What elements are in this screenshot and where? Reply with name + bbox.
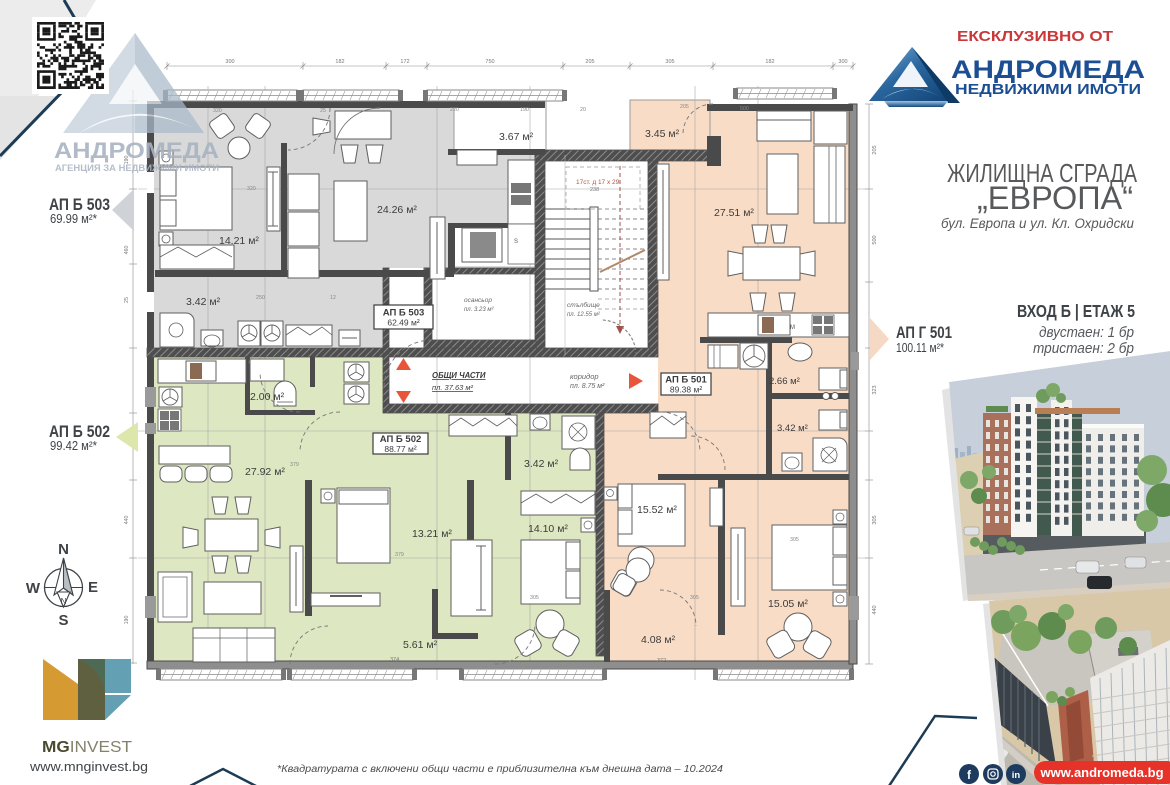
svg-text:N: N: [61, 597, 67, 606]
svg-text:379: 379: [290, 462, 299, 468]
svg-text:238: 238: [590, 187, 599, 193]
svg-text:305: 305: [790, 537, 799, 543]
svg-text:17ст. д 17 х 29: 17ст. д 17 х 29: [576, 179, 620, 186]
svg-text:190: 190: [124, 616, 130, 625]
svg-text:500: 500: [740, 106, 749, 112]
svg-text:14.10 м²: 14.10 м²: [528, 523, 568, 535]
svg-text:АГЕНЦИЯ ЗА НЕДВИЖИМИ ИМОТИ: АГЕНЦИЯ ЗА НЕДВИЖИМИ ИМОТИ: [55, 163, 219, 173]
svg-text:2.00 м²: 2.00 м²: [250, 391, 285, 403]
svg-text:300: 300: [225, 59, 234, 65]
svg-text:182: 182: [765, 59, 774, 65]
svg-text:62.49 м²: 62.49 м²: [387, 318, 419, 328]
svg-text:АНДРОМЕДА: АНДРОМЕДА: [54, 138, 219, 163]
svg-text:5.61 м²: 5.61 м²: [403, 639, 438, 651]
svg-text:www.mnginvest.bg: www.mnginvest.bg: [29, 759, 148, 774]
svg-text:220: 220: [450, 107, 459, 113]
svg-text:W: W: [26, 580, 41, 597]
svg-text:3.42 м²: 3.42 м²: [524, 458, 559, 470]
svg-text:НЕДВИЖИМИ ИМОТИ: НЕДВИЖИМИ ИМОТИ: [955, 81, 1141, 98]
svg-text:305: 305: [872, 515, 878, 524]
svg-text:15.52 м²: 15.52 м²: [637, 504, 677, 516]
svg-text:300: 300: [838, 59, 847, 65]
svg-text:25: 25: [320, 108, 326, 114]
svg-text:3.45 м²: 3.45 м²: [645, 128, 680, 140]
svg-text:13.21 м²: 13.21 м²: [412, 528, 452, 540]
svg-text:АП Г 501: АП Г 501: [896, 324, 952, 342]
svg-text:205: 205: [872, 145, 878, 154]
svg-text:27.51 м²: 27.51 м²: [714, 207, 754, 219]
svg-text:3.42 м²: 3.42 м²: [777, 423, 808, 434]
svg-text:www.andromeda.bg: www.andromeda.bg: [1039, 765, 1163, 780]
svg-text:in: in: [1012, 770, 1021, 781]
svg-text:MGINVEST: MGINVEST: [42, 739, 132, 756]
svg-text:14.21 м²: 14.21 м²: [219, 235, 259, 247]
svg-text:88.77 м²: 88.77 м²: [384, 444, 416, 454]
svg-text:27.92 м²: 27.92 м²: [245, 466, 285, 478]
svg-text:440: 440: [124, 516, 130, 525]
svg-text:250: 250: [256, 295, 265, 301]
svg-text:S: S: [514, 239, 518, 245]
svg-text:99.42 м²*: 99.42 м²*: [50, 439, 97, 453]
svg-text:320: 320: [247, 186, 256, 192]
svg-text:12: 12: [330, 295, 336, 301]
svg-text:460: 460: [124, 246, 130, 255]
svg-text:20: 20: [580, 107, 586, 113]
svg-text:стълбище: стълбище: [567, 301, 600, 309]
svg-text:172: 172: [400, 59, 409, 65]
svg-text:пл. 12.55 м²: пл. 12.55 м²: [567, 312, 601, 318]
svg-text:100.11 м²*: 100.11 м²*: [896, 341, 944, 355]
svg-text:372: 372: [657, 658, 666, 664]
svg-text:379: 379: [395, 552, 404, 558]
svg-text:ВХОД Б | ЕТАЖ 5: ВХОД Б | ЕТАЖ 5: [1017, 301, 1135, 321]
svg-text:750: 750: [485, 59, 494, 65]
svg-text:320: 320: [213, 108, 222, 114]
svg-text:пл. 8.75 м²: пл. 8.75 м²: [570, 383, 605, 390]
svg-text:69.99 м²*: 69.99 м²*: [50, 212, 97, 226]
svg-text:500: 500: [872, 235, 878, 244]
svg-text:323: 323: [872, 385, 878, 394]
svg-text:ЕКСКЛУЗИВНО ОТ: ЕКСКЛУЗИВНО ОТ: [957, 28, 1113, 45]
svg-text:305: 305: [530, 595, 539, 601]
svg-text:3.42 м²: 3.42 м²: [186, 296, 221, 308]
svg-text:бул. Европа и ул. Кл. Охридски: бул. Европа и ул. Кл. Охридски: [941, 216, 1134, 231]
svg-text:25: 25: [124, 297, 130, 303]
svg-text:*Квадратурата с включени общи: *Квадратурата с включени общи части е пр…: [277, 763, 723, 775]
svg-text:ОБЩИ ЧАСТИ: ОБЩИ ЧАСТИ: [432, 371, 486, 380]
svg-text:182: 182: [335, 59, 344, 65]
svg-text:15.05 м²: 15.05 м²: [768, 598, 808, 610]
svg-text:пл. 37.63 м²: пл. 37.63 м²: [432, 383, 474, 392]
svg-text:тристаен: 2 бр: тристаен: 2 бр: [1033, 341, 1134, 357]
svg-text:205: 205: [585, 59, 594, 65]
svg-text:89.38 м²: 89.38 м²: [670, 385, 702, 395]
svg-text:190: 190: [520, 107, 529, 113]
svg-text:АНДРОМЕДА: АНДРОМЕДА: [951, 56, 1145, 84]
svg-text:305: 305: [665, 59, 674, 65]
svg-text:М: М: [790, 325, 795, 331]
svg-text:N: N: [58, 541, 69, 558]
svg-text:24.26 м²: 24.26 м²: [377, 204, 417, 216]
svg-text:2.66 м²: 2.66 м²: [769, 376, 800, 387]
svg-text:коридор: коридор: [570, 372, 599, 381]
svg-text:E: E: [88, 579, 98, 596]
svg-text:3.67 м²: 3.67 м²: [499, 131, 534, 143]
svg-text:пл. 3.23 м²: пл. 3.23 м²: [464, 307, 494, 313]
svg-text:„ЕВРОПА“: „ЕВРОПА“: [977, 180, 1133, 216]
svg-text:двустаен: 1 бр: двустаен: 1 бр: [1039, 325, 1134, 341]
svg-text:205: 205: [680, 104, 689, 110]
svg-text:374: 374: [390, 657, 399, 663]
svg-text:440: 440: [872, 605, 878, 614]
svg-text:305: 305: [690, 595, 699, 601]
svg-text:S: S: [58, 612, 68, 629]
svg-text:осансьор: осансьор: [464, 297, 492, 304]
svg-text:4.08 м²: 4.08 м²: [641, 634, 676, 646]
